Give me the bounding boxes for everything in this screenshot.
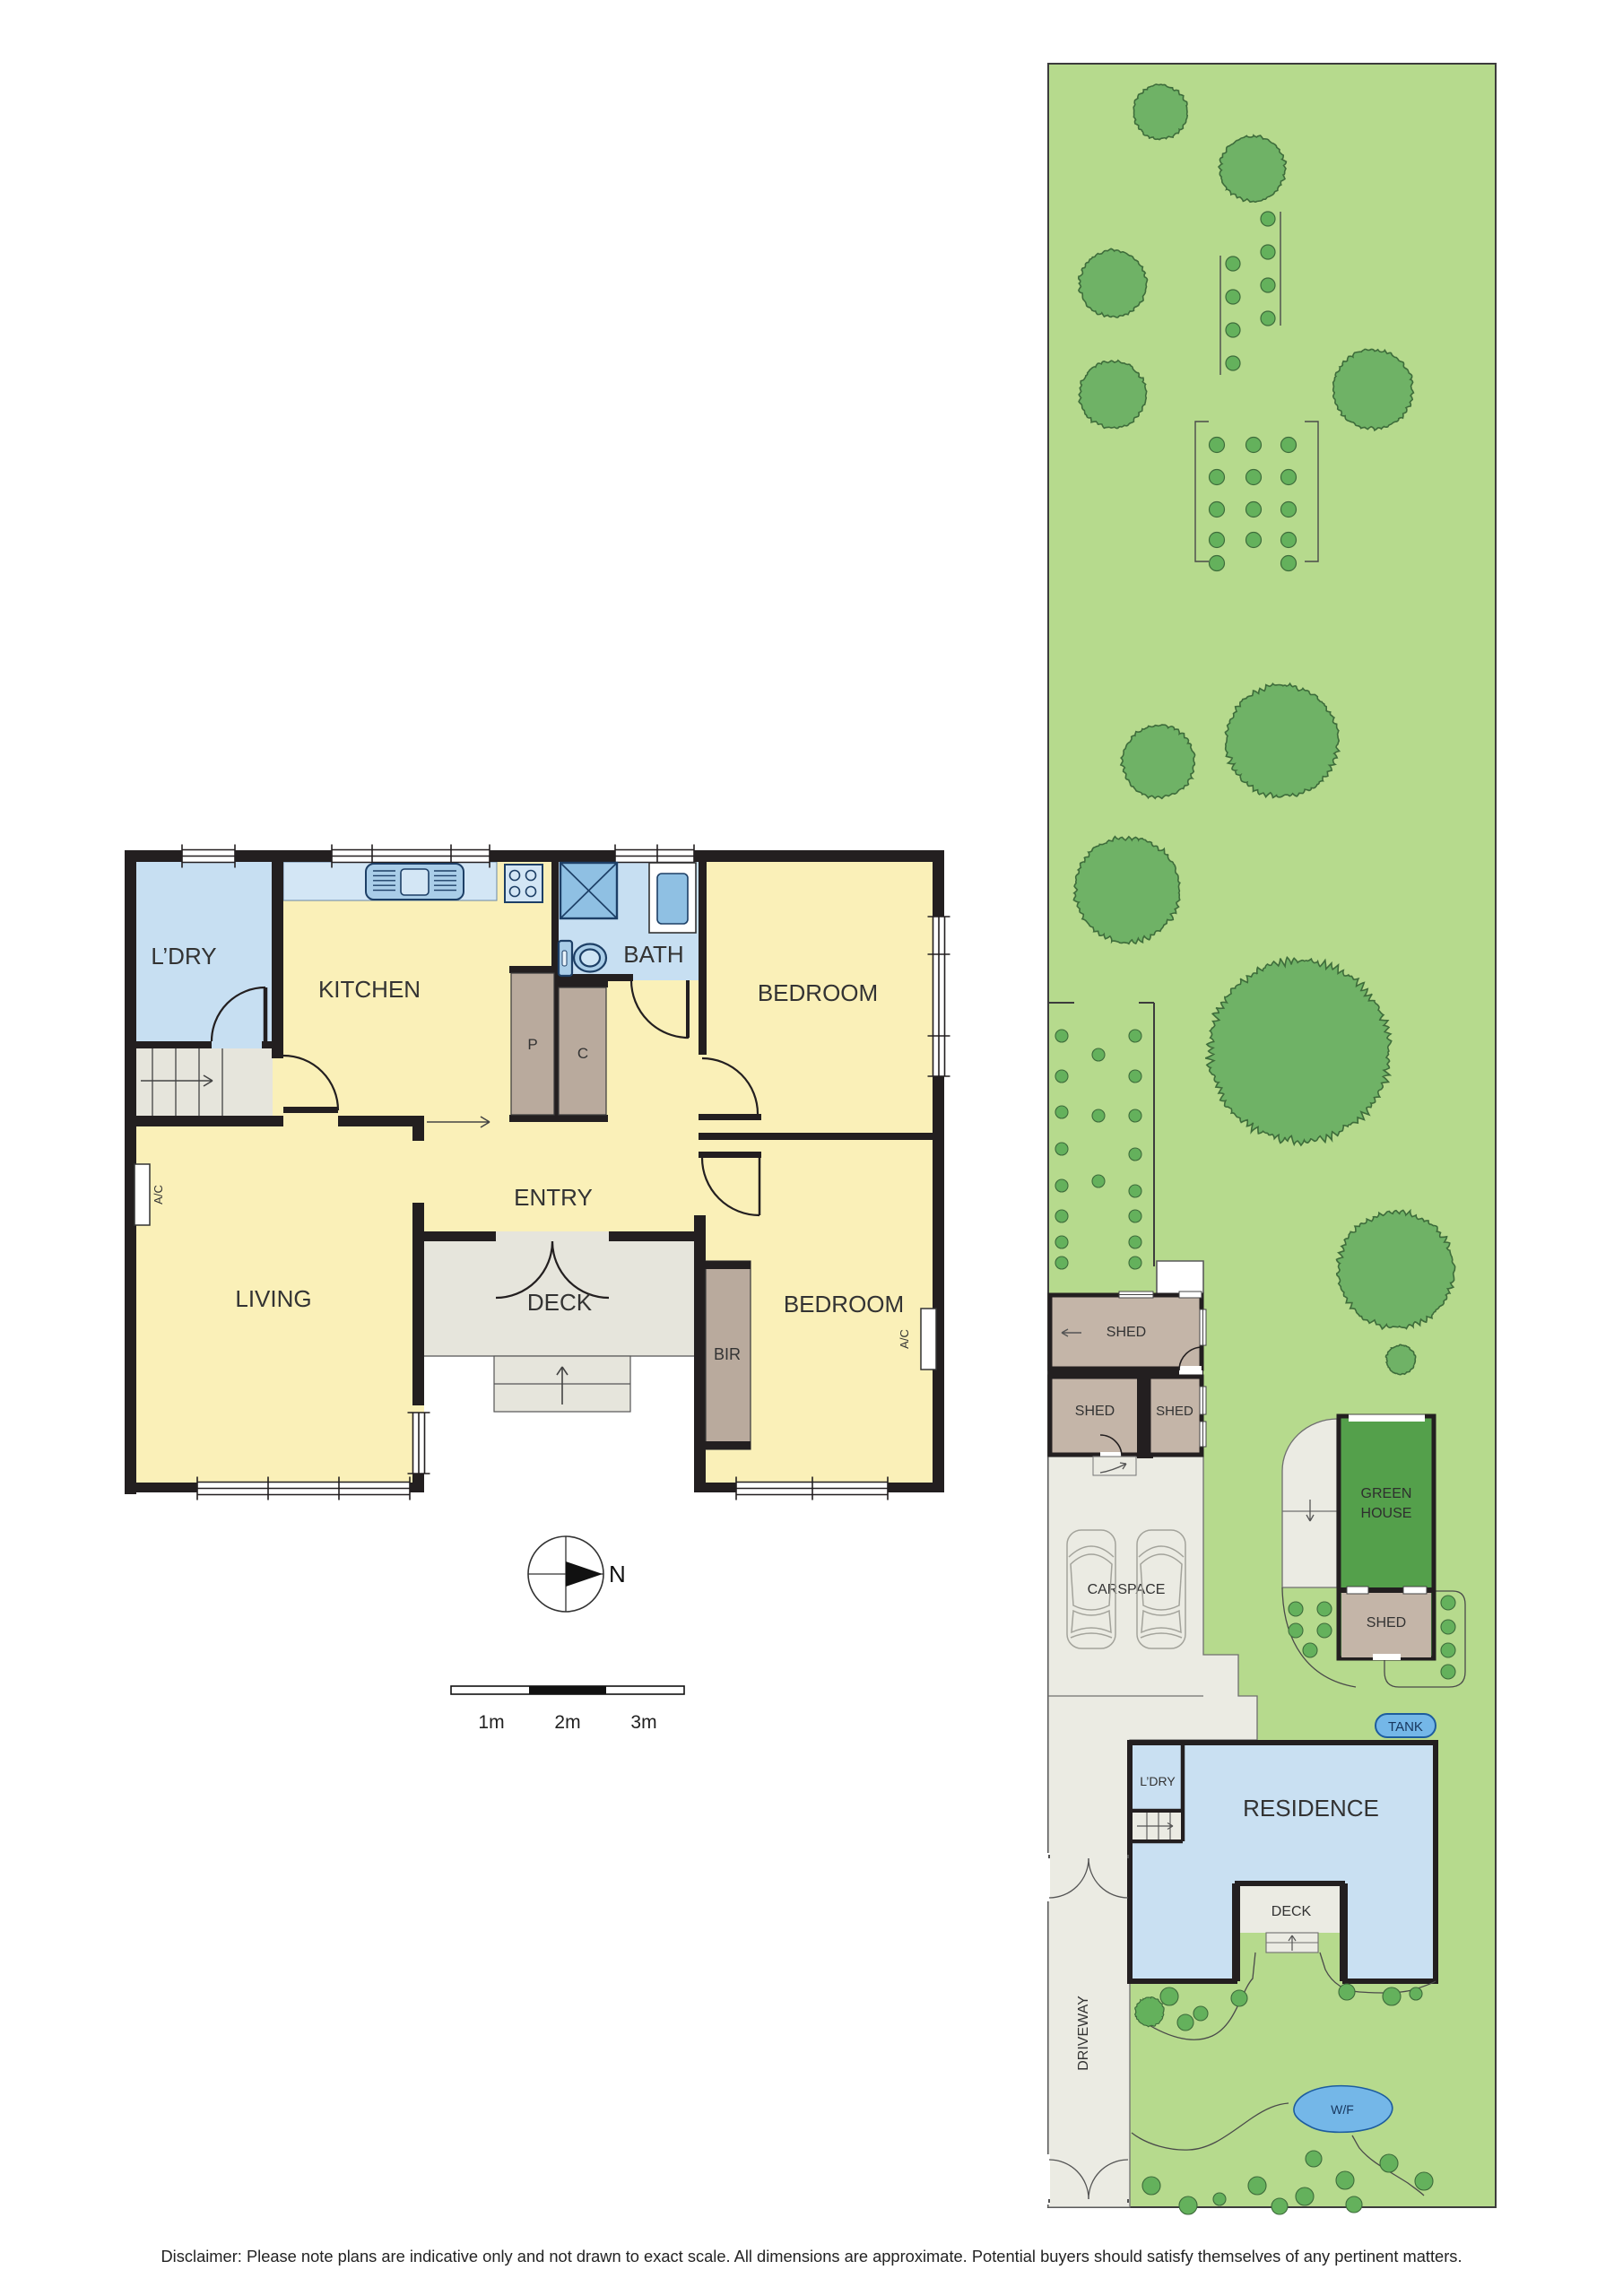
svg-text:L’DRY: L’DRY bbox=[1140, 1774, 1176, 1788]
svg-text:RESIDENCE: RESIDENCE bbox=[1243, 1795, 1379, 1822]
svg-text:SHED: SHED bbox=[1107, 1325, 1146, 1340]
svg-text:CARSPACE: CARSPACE bbox=[1088, 1582, 1166, 1597]
svg-text:3m: 3m bbox=[630, 1712, 656, 1733]
svg-text:ENTRY: ENTRY bbox=[514, 1184, 593, 1211]
svg-text:Disclaimer: Please note plans: Disclaimer: Please note plans are indica… bbox=[161, 2247, 1462, 2266]
svg-text:P: P bbox=[527, 1036, 537, 1053]
svg-text:DRIVEWAY: DRIVEWAY bbox=[1076, 1996, 1091, 2071]
svg-text:GREEN: GREEN bbox=[1361, 1486, 1412, 1501]
svg-text:W/F: W/F bbox=[1331, 2102, 1354, 2117]
svg-text:1m: 1m bbox=[478, 1712, 504, 1733]
svg-text:N: N bbox=[609, 1561, 626, 1587]
svg-text:SHED: SHED bbox=[1367, 1615, 1406, 1631]
svg-text:HOUSE: HOUSE bbox=[1361, 1506, 1412, 1521]
svg-text:DECK: DECK bbox=[1271, 1904, 1312, 1919]
svg-text:2m: 2m bbox=[554, 1712, 580, 1733]
svg-text:DECK: DECK bbox=[527, 1289, 593, 1316]
svg-text:KITCHEN: KITCHEN bbox=[318, 976, 421, 1003]
svg-text:TANK: TANK bbox=[1388, 1719, 1423, 1735]
svg-text:SHED: SHED bbox=[1156, 1404, 1193, 1419]
svg-text:A/C: A/C bbox=[898, 1329, 911, 1349]
svg-text:C: C bbox=[577, 1045, 588, 1062]
svg-text:BIR: BIR bbox=[714, 1345, 741, 1363]
svg-text:BEDROOM: BEDROOM bbox=[758, 979, 878, 1006]
svg-text:A/C: A/C bbox=[152, 1185, 165, 1205]
svg-text:BATH: BATH bbox=[623, 941, 683, 968]
svg-text:L’DRY: L’DRY bbox=[151, 943, 216, 970]
svg-text:BEDROOM: BEDROOM bbox=[784, 1291, 904, 1318]
svg-text:LIVING: LIVING bbox=[235, 1285, 311, 1312]
svg-text:SHED: SHED bbox=[1075, 1404, 1115, 1419]
